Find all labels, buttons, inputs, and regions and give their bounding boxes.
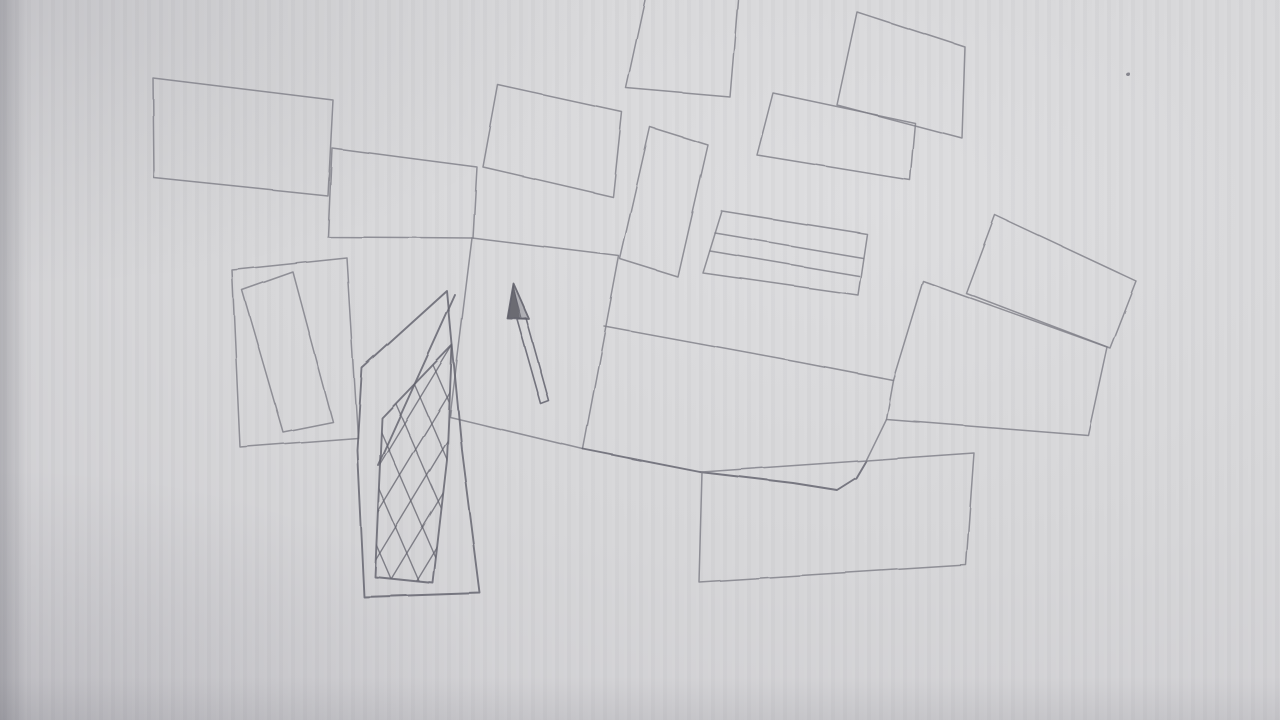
sketch-rect-top-right xyxy=(837,12,965,138)
sketch-right-lower-overshoot xyxy=(866,419,886,460)
hatch-line-1-10 xyxy=(459,335,620,600)
sketch-long-bottom-stroke xyxy=(583,449,866,490)
sketch-rect-center-main xyxy=(450,238,619,449)
sketch-striped-inner-line-2 xyxy=(710,251,859,276)
crosshatch-pattern xyxy=(189,335,620,600)
hatch-line-1-1 xyxy=(216,335,377,600)
sketch-striped-inner-line-1 xyxy=(715,233,863,258)
sketch-rect-top-mid-wide xyxy=(757,93,915,180)
sketch-hatch-long-diagonal xyxy=(378,295,455,465)
sketch-rect-bottom-center xyxy=(699,453,974,582)
paintbrush-handle xyxy=(517,318,549,404)
pencil-sketch-drawing xyxy=(0,0,1280,720)
sketch-rect-left-inner-bar xyxy=(242,272,333,432)
hatch-line-0-0 xyxy=(285,335,400,600)
sketch-rect-striped xyxy=(703,211,867,295)
stray-pencil-dot xyxy=(1126,72,1130,76)
sketch-rect-narrow-tall xyxy=(620,127,708,277)
paintbrush-head-icon xyxy=(507,283,529,319)
sketch-mid-diagonal-line xyxy=(604,326,893,380)
sketch-rect-top-center xyxy=(626,0,738,97)
hatch-line-1-7 xyxy=(378,335,539,600)
sketch-rect-top-left xyxy=(153,78,333,196)
sketch-rect-left-mid xyxy=(328,148,477,238)
hatch-line-0-1 xyxy=(312,335,427,600)
sketch-rect-center-upper xyxy=(483,85,622,197)
stroke-layer xyxy=(153,0,1136,600)
hatch-line-1-5 xyxy=(324,335,485,600)
sketch-rect-right-upper xyxy=(966,215,1136,348)
hatch-line-1-4 xyxy=(297,335,458,600)
hatch-line-1-9 xyxy=(432,335,593,600)
photo-of-pencil-sketch xyxy=(0,0,1280,720)
hatch-line-1-3 xyxy=(270,335,431,600)
hatch-line-1-0 xyxy=(189,335,350,600)
hatch-line-0-5 xyxy=(420,335,535,600)
